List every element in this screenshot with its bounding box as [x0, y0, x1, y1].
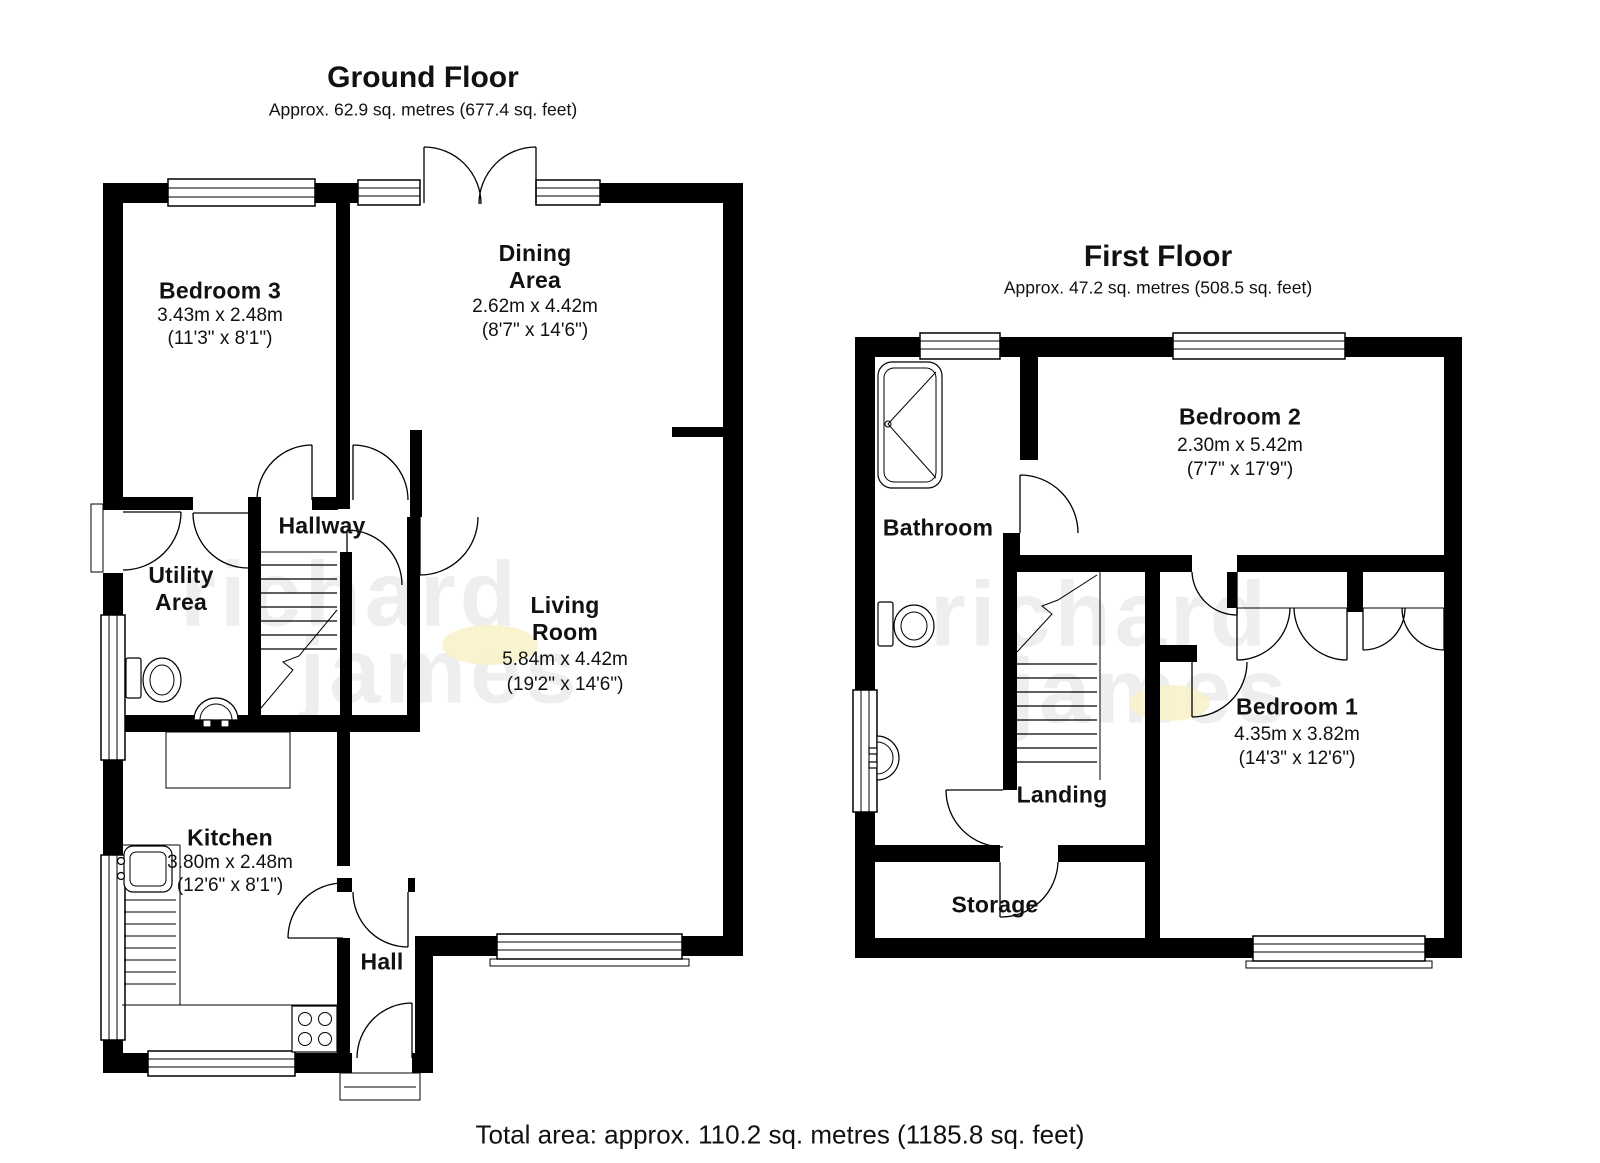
- window: [101, 855, 125, 1040]
- window: [168, 179, 315, 206]
- toilet-icon: [878, 602, 934, 647]
- bathroom-fixtures: [869, 362, 942, 780]
- window: [101, 615, 125, 760]
- room-label-bedroom1: Bedroom 1: [1236, 694, 1358, 721]
- room-label-living: Living Room: [520, 592, 610, 646]
- room-label-dining: Dining Area: [488, 240, 583, 294]
- room-label-landing: Landing: [1017, 782, 1108, 809]
- window: [920, 333, 1000, 359]
- toilet-icon: [126, 658, 181, 702]
- living-room-door-icon: [420, 517, 478, 575]
- room-dim-kitchen-metric: 3.80m x 2.48m: [167, 852, 293, 874]
- porch-step: [340, 1073, 420, 1100]
- hall-door-icon: [353, 892, 408, 947]
- floorplan-drawing: [0, 0, 1600, 1163]
- room-dim-bedroom3-imperial: (11'3" x 8'1"): [168, 328, 273, 350]
- room-label-storage: Storage: [951, 892, 1038, 919]
- room-label-hall: Hall: [361, 949, 404, 976]
- first-floor-subtitle: Approx. 47.2 sq. metres (508.5 sq. feet): [1004, 278, 1312, 299]
- room-label-bedroom3: Bedroom 3: [159, 278, 281, 305]
- window: [1246, 936, 1432, 968]
- kitchen-door-icon: [288, 883, 343, 938]
- room-dim-bedroom2-metric: 2.30m x 5.42m: [1177, 435, 1303, 457]
- sink-icon: [118, 846, 173, 892]
- room-dim-bedroom1-metric: 4.35m x 3.82m: [1234, 724, 1360, 746]
- ground-floor-doors: [91, 147, 536, 1100]
- room-dim-dining-metric: 2.62m x 4.42m: [472, 296, 598, 318]
- room-dim-living-imperial: (19'2" x 14'6"): [507, 674, 624, 696]
- bedroom3-door-icon: [257, 445, 312, 500]
- bathroom-door-icon: [1020, 475, 1078, 533]
- wardrobe-doors-icon: [1237, 608, 1444, 660]
- room-label-kitchen: Kitchen: [187, 825, 273, 852]
- shower-icon: [878, 362, 942, 488]
- room-label-utility: Utility Area: [139, 562, 224, 616]
- first-floor-stairs: [1017, 572, 1100, 780]
- first-floor-walls: [855, 337, 1462, 958]
- window: [148, 1051, 295, 1076]
- room-dim-bedroom2-imperial: (7'7" x 17'9"): [1187, 459, 1293, 481]
- room-label-bathroom: Bathroom: [883, 515, 993, 542]
- room-dim-bedroom3-metric: 3.43m x 2.48m: [157, 305, 283, 327]
- room-dim-dining-imperial: (8'7" x 14'6"): [482, 320, 588, 342]
- room-dim-living-metric: 5.84m x 4.42m: [502, 649, 628, 671]
- front-door-icon: [357, 1003, 412, 1058]
- room-label-hallway: Hallway: [278, 513, 365, 540]
- landing-door-icon: [946, 790, 1003, 847]
- stove-icon: [292, 1006, 337, 1052]
- ground-floor-stairs: [261, 552, 337, 708]
- ground-floor-title: Ground Floor: [327, 61, 519, 95]
- window: [1173, 333, 1345, 359]
- french-doors-icon: [424, 147, 536, 204]
- drainer-icon: [124, 900, 176, 984]
- room-label-bedroom2: Bedroom 2: [1179, 404, 1301, 431]
- window: [358, 180, 420, 205]
- utility-door-icon: [193, 513, 248, 568]
- window: [536, 180, 600, 205]
- first-floor-title: First Floor: [1084, 240, 1232, 274]
- total-area-text: Total area: approx. 110.2 sq. metres (11…: [476, 1120, 1085, 1151]
- room-dim-kitchen-imperial: (12'6" x 8'1"): [177, 875, 283, 897]
- ground-floor-subtitle: Approx. 62.9 sq. metres (677.4 sq. feet): [269, 100, 577, 121]
- room-dim-bedroom1-imperial: (14'3" x 12'6"): [1239, 748, 1356, 770]
- window: [490, 934, 689, 966]
- floorplan-canvas: richard james richard james: [0, 0, 1600, 1163]
- dining-door-icon: [353, 445, 408, 500]
